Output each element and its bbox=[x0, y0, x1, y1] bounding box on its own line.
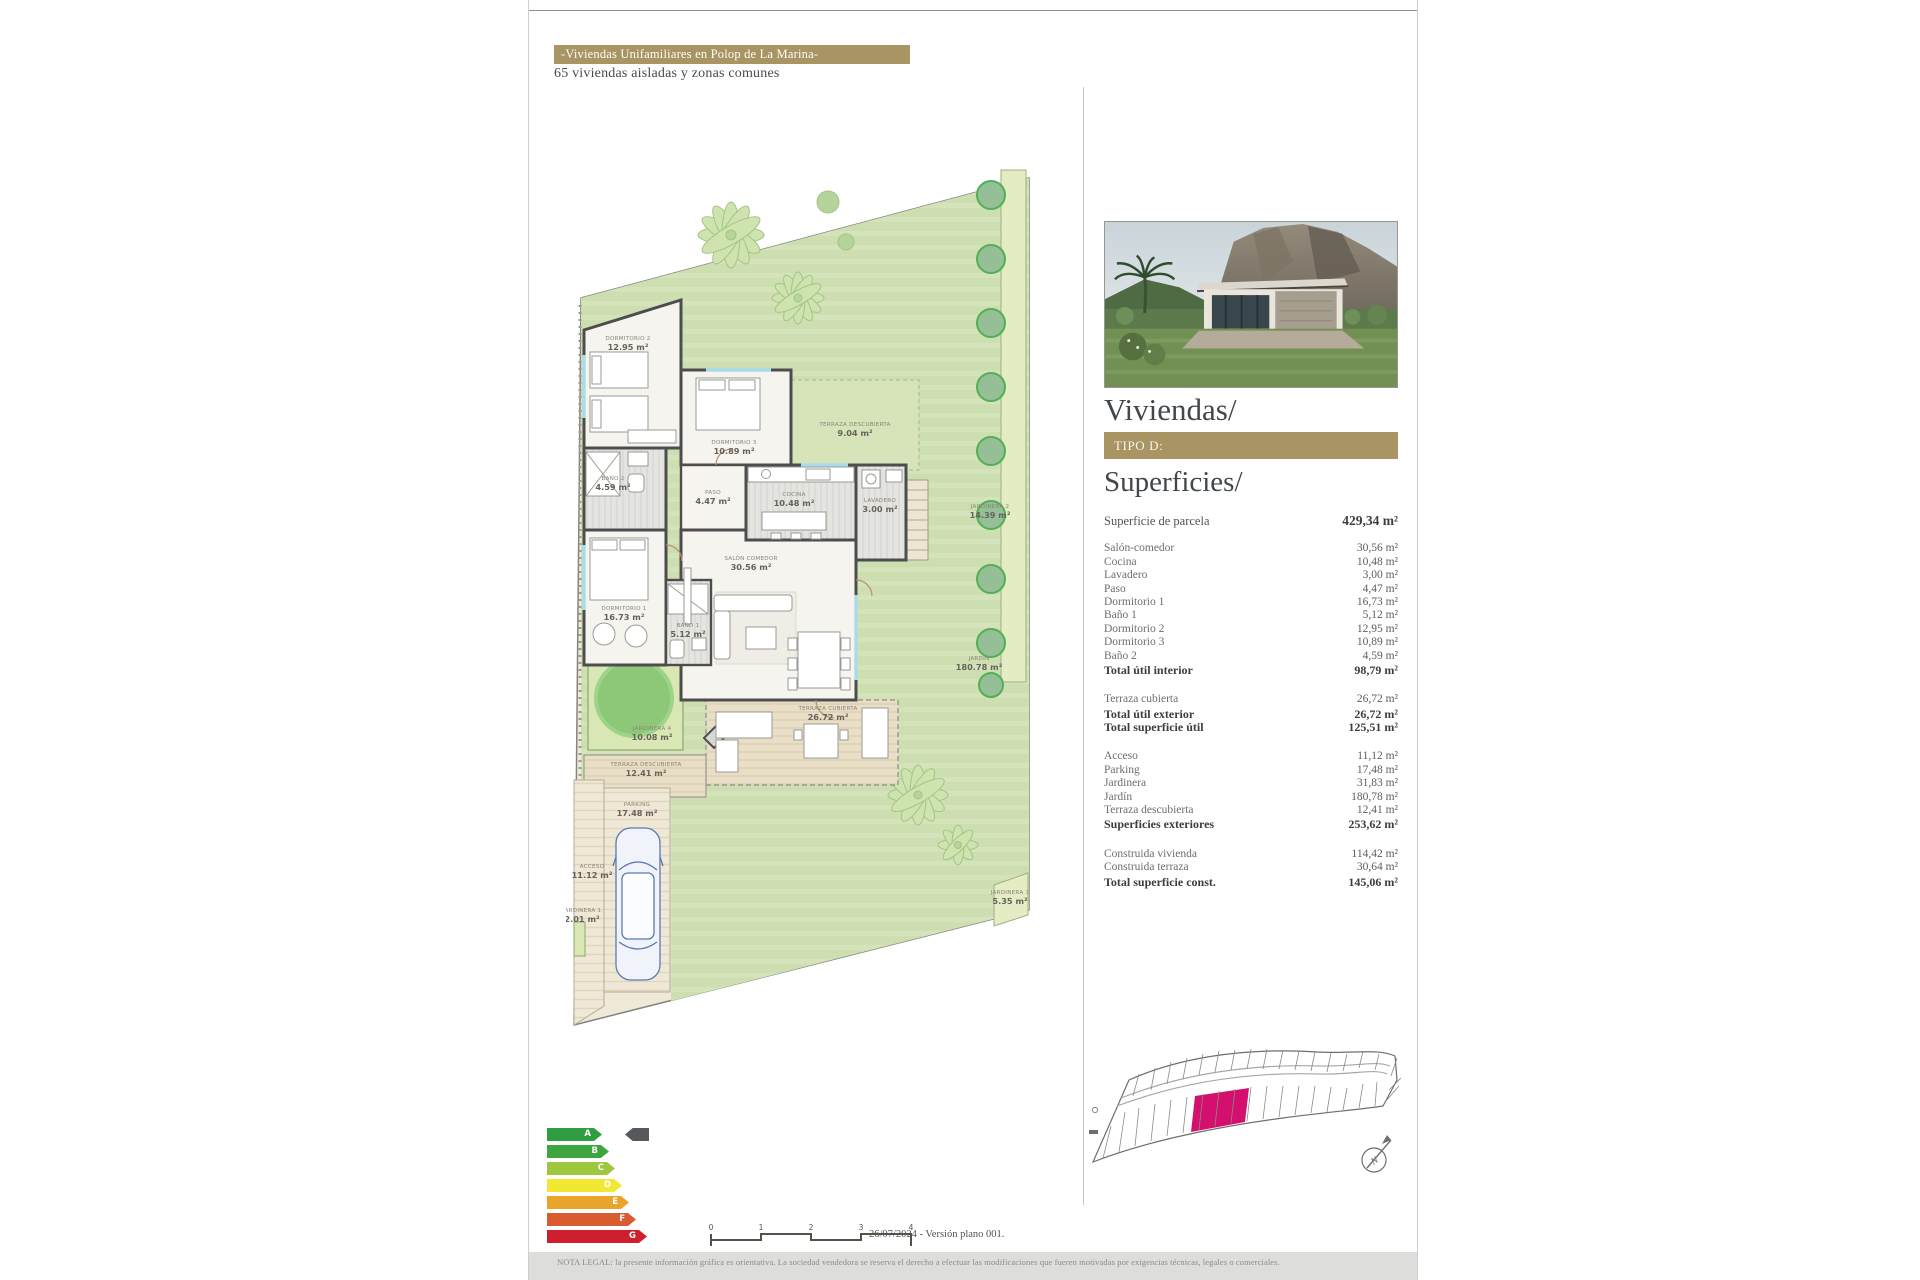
surface-row: Baño 24,59 m² bbox=[1104, 650, 1398, 663]
surface-row: Terraza cubierta26,72 m² bbox=[1104, 693, 1398, 706]
svg-text:17.48 m²: 17.48 m² bbox=[617, 808, 658, 818]
svg-text:10.48 m²: 10.48 m² bbox=[774, 498, 815, 508]
planter-1 bbox=[574, 922, 585, 956]
energy-grade-e: E bbox=[547, 1196, 629, 1209]
surface-row: Acceso11,12 m² bbox=[1104, 750, 1398, 763]
viviendas-heading: Viviendas/ bbox=[1104, 392, 1236, 428]
surface-row-total: Total superficie útil125,51 m² bbox=[1104, 720, 1398, 733]
surface-row: Superficie de parcela429,34 m² bbox=[1104, 513, 1398, 526]
surface-row-total: Total útil interior98,79 m² bbox=[1104, 663, 1398, 676]
surfaces-table: Superficie de parcela429,34 m² Salón-com… bbox=[1104, 513, 1398, 888]
energy-grade-b: B bbox=[547, 1145, 609, 1158]
surface-row: Lavadero3,00 m² bbox=[1104, 569, 1398, 582]
energy-grade-d: D bbox=[547, 1179, 622, 1192]
document-page: -Viviendas Unifamiliares en Polop de La … bbox=[528, 0, 1418, 1280]
project-title: -Viviendas Unifamiliares en Polop de La … bbox=[561, 47, 818, 61]
svg-text:2.01 m²: 2.01 m² bbox=[566, 914, 600, 924]
legal-note-text: NOTA LEGAL: la presente información gráf… bbox=[557, 1257, 1280, 1267]
svg-text:4.59 m²: 4.59 m² bbox=[595, 482, 631, 492]
energy-grade-c: C bbox=[547, 1162, 615, 1175]
svg-text:BAÑO 1: BAÑO 1 bbox=[676, 622, 699, 629]
energy-grade-g: G bbox=[547, 1230, 647, 1243]
superficies-heading: Superficies/ bbox=[1104, 466, 1243, 499]
surface-row: Jardinera31,83 m² bbox=[1104, 777, 1398, 790]
project-subtitle: 65 viviendas aisladas y zonas comunes bbox=[554, 66, 780, 82]
development-location-map: N bbox=[1087, 1046, 1411, 1196]
surface-row: Parking17,48 m² bbox=[1104, 764, 1398, 777]
surface-row: Jardín180,78 m² bbox=[1104, 791, 1398, 804]
top-rule bbox=[529, 10, 1417, 11]
svg-text:12.95 m²: 12.95 m² bbox=[608, 342, 649, 352]
surface-row: Cocina10,48 m² bbox=[1104, 556, 1398, 569]
map-reference-marks bbox=[1089, 1107, 1098, 1134]
svg-text:2: 2 bbox=[809, 1223, 814, 1232]
car bbox=[613, 828, 663, 980]
svg-text:12.41 m²: 12.41 m² bbox=[626, 768, 667, 778]
svg-text:3.00 m²: 3.00 m² bbox=[862, 504, 898, 514]
svg-text:180.78 m²: 180.78 m² bbox=[956, 662, 1003, 672]
svg-text:0: 0 bbox=[709, 1223, 714, 1232]
surface-row-total: Superficies exteriores253,62 m² bbox=[1104, 817, 1398, 830]
svg-text:SALÓN COMEDOR: SALÓN COMEDOR bbox=[724, 555, 777, 562]
svg-text:5.12 m²: 5.12 m² bbox=[670, 629, 706, 639]
svg-text:26.72 m²: 26.72 m² bbox=[808, 712, 849, 722]
svg-text:11.12 m²: 11.12 m² bbox=[572, 870, 613, 880]
energy-pointer-icon bbox=[625, 1128, 649, 1141]
surface-row: Paso4,47 m² bbox=[1104, 583, 1398, 596]
surface-row: Baño 15,12 m² bbox=[1104, 609, 1398, 622]
house-render-photo bbox=[1104, 221, 1398, 388]
surface-row: Construida terraza30,64 m² bbox=[1104, 861, 1398, 874]
planter-strip bbox=[1001, 170, 1026, 682]
svg-text:10.08 m²: 10.08 m² bbox=[632, 732, 673, 742]
legal-note-bar: NOTA LEGAL: la presente información gráf… bbox=[529, 1252, 1417, 1280]
svg-text:30.56 m²: 30.56 m² bbox=[731, 562, 772, 572]
energy-rating-label: A B C D E F G bbox=[547, 1128, 687, 1247]
garden-tree bbox=[596, 660, 672, 736]
svg-text:N: N bbox=[1368, 1154, 1382, 1168]
plan-version-text: 26/07/2024 - Versión plano 001. bbox=[869, 1229, 1004, 1240]
svg-text:5.35 m²: 5.35 m² bbox=[992, 896, 1028, 906]
surface-row-total: Total útil exterior26,72 m² bbox=[1104, 707, 1398, 720]
svg-text:3: 3 bbox=[859, 1223, 864, 1232]
surface-row: Construida vivienda114,42 m² bbox=[1104, 848, 1398, 861]
svg-text:10.89 m²: 10.89 m² bbox=[714, 446, 755, 456]
energy-grade-f: F bbox=[547, 1213, 636, 1226]
surface-row: Dormitorio 310,89 m² bbox=[1104, 636, 1398, 649]
type-label-bar: TIPO D: bbox=[1104, 432, 1398, 459]
surface-row-total: Total superficie const.145,06 m² bbox=[1104, 875, 1398, 888]
svg-text:1: 1 bbox=[759, 1223, 764, 1232]
svg-text:BAÑO 2: BAÑO 2 bbox=[601, 475, 624, 482]
svg-text:14.39 m²: 14.39 m² bbox=[970, 510, 1011, 520]
access-strip bbox=[574, 780, 604, 1025]
site-floor-plan: DORMITORIO 2 12.95 m² BAÑO 2 4.59 m² DOR… bbox=[566, 140, 1041, 1035]
panel-divider bbox=[1083, 87, 1084, 1205]
surface-row: Dormitorio 116,73 m² bbox=[1104, 596, 1398, 609]
surface-row: Dormitorio 212,95 m² bbox=[1104, 623, 1398, 636]
svg-text:9.04 m²: 9.04 m² bbox=[837, 428, 873, 438]
type-label: TIPO D: bbox=[1114, 438, 1163, 453]
surface-row: Salón-comedor30,56 m² bbox=[1104, 542, 1398, 555]
project-title-bar: -Viviendas Unifamiliares en Polop de La … bbox=[554, 45, 910, 64]
north-arrow-icon: N bbox=[1362, 1135, 1391, 1172]
energy-grade-a: A bbox=[547, 1128, 602, 1141]
svg-text:4.47 m²: 4.47 m² bbox=[695, 496, 731, 506]
svg-text:16.73 m²: 16.73 m² bbox=[604, 612, 645, 622]
surface-row: Terraza descubierta12,41 m² bbox=[1104, 804, 1398, 817]
